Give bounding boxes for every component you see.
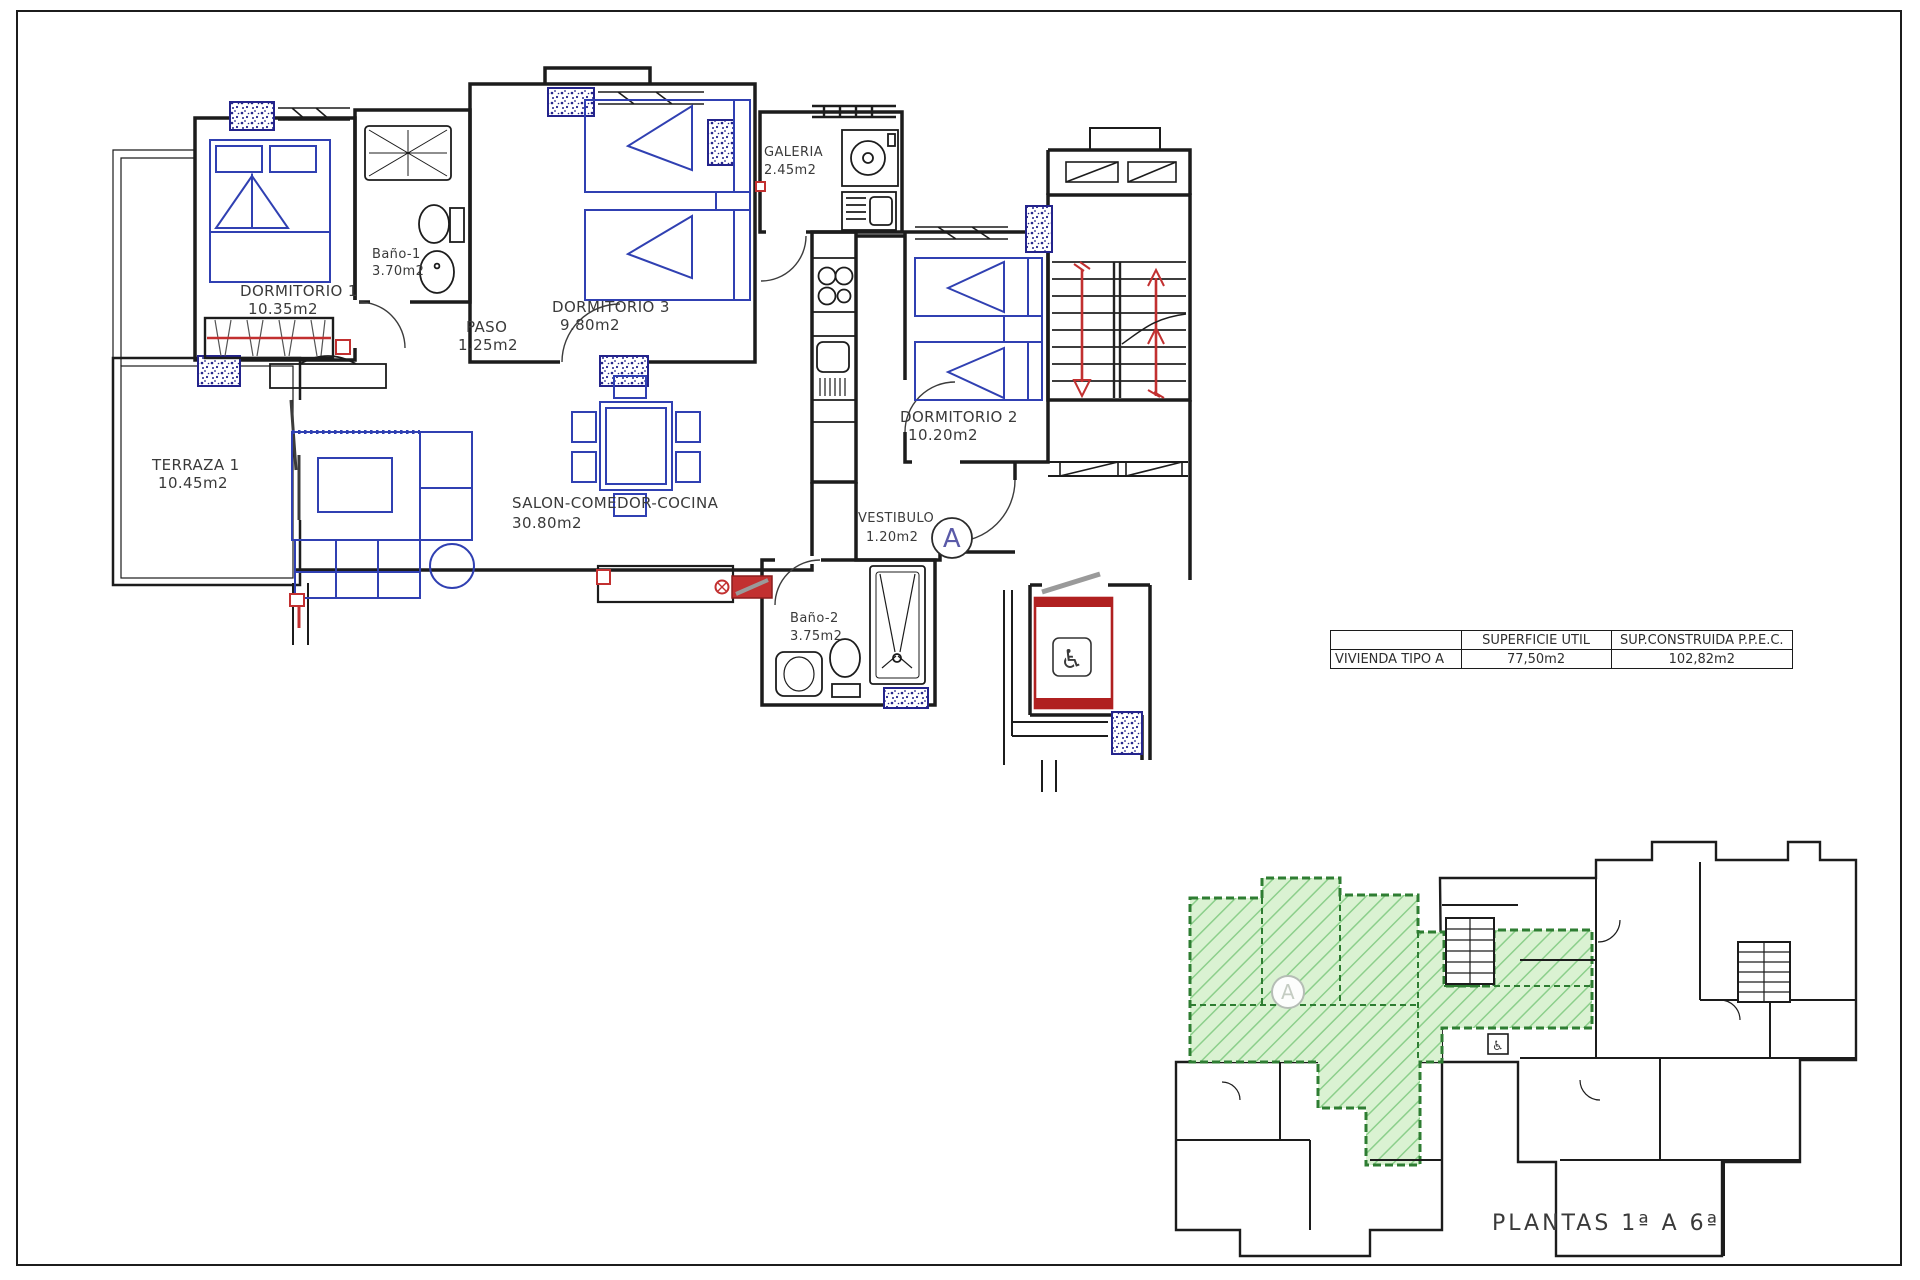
label-bano1-area: 3.70m2 — [372, 264, 424, 279]
label-salon-area: 30.80m2 — [512, 514, 582, 532]
label-dormitorio1-area: 10.35m2 — [248, 300, 318, 318]
label-paso-name: PASO — [466, 318, 507, 336]
key-plan-elevators: ♿ — [1488, 1034, 1508, 1054]
galeria-fixtures — [842, 130, 898, 230]
unit-letter-main: A — [943, 524, 961, 554]
wheelchair-icon: ♿ — [1060, 645, 1084, 675]
label-dormitorio3-name: DORMITORIO 3 — [552, 298, 670, 316]
table-sup-construida: 102,82m2 — [1611, 650, 1792, 669]
label-salon-name: SALON-COMEDOR-COCINA — [512, 494, 719, 512]
key-plan-title: PLANTAS 1ª A 6ª — [1492, 1211, 1720, 1236]
label-dormitorio2-area: 10.20m2 — [908, 426, 978, 444]
key-plan: A ♿ PLANTAS 1ª A 6ª — [1176, 842, 1856, 1256]
table-data-row: VIVIENDA TIPO A 77,50m2 102,82m2 — [1331, 650, 1793, 669]
label-terraza-name: TERRAZA 1 — [151, 456, 240, 474]
surface-summary-table: SUPERFICIE UTIL SUP.CONSTRUIDA P.P.E.C. … — [1330, 630, 1793, 669]
label-dormitorio3-area: 9.80m2 — [560, 316, 620, 334]
table-header-construida: SUP.CONSTRUIDA P.P.E.C. — [1611, 631, 1792, 650]
label-terraza-area: 10.45m2 — [158, 474, 228, 492]
red-accents — [290, 182, 772, 628]
label-galeria-name: GALERIA — [764, 145, 823, 160]
walls — [195, 68, 1190, 792]
main-floorplan: ♿ A DORMITORIO 1 10.35m2 Baño-1 3.70m2 D… — [113, 68, 1190, 792]
label-paso-area: 1.25m2 — [458, 336, 518, 354]
table-row-label: VIVIENDA TIPO A — [1331, 650, 1462, 669]
sofa — [292, 432, 474, 598]
kitchen-fixtures — [812, 258, 856, 422]
label-bano1-name: Baño-1 — [372, 247, 421, 262]
elevator: ♿ — [1035, 574, 1112, 708]
label-bano2-area: 3.75m2 — [790, 629, 842, 644]
label-bano2-name: Baño-2 — [790, 611, 839, 626]
label-vestibulo-area: 1.20m2 — [866, 530, 918, 545]
wheelchair-icon-small: ♿ — [1492, 1039, 1504, 1054]
bed-double — [210, 140, 330, 282]
beds-dorm2 — [915, 258, 1042, 400]
drawing-sheet: ♿ A DORMITORIO 1 10.35m2 Baño-1 3.70m2 D… — [0, 0, 1920, 1280]
unit-badge: A — [932, 518, 972, 558]
label-dormitorio1-name: DORMITORIO 1 — [240, 282, 358, 300]
table-superficie-util: 77,50m2 — [1461, 650, 1611, 669]
staircase — [1052, 262, 1186, 398]
label-vestibulo-name: VESTIBULO — [858, 511, 934, 526]
table-header-empty — [1331, 631, 1462, 650]
label-galeria-area: 2.45m2 — [764, 163, 816, 178]
label-dormitorio2-name: DORMITORIO 2 — [900, 408, 1018, 426]
table-header-row: SUPERFICIE UTIL SUP.CONSTRUIDA P.P.E.C. — [1331, 631, 1793, 650]
wardrobe — [205, 318, 350, 358]
table-header-superficie: SUPERFICIE UTIL — [1461, 631, 1611, 650]
unit-letter-keyplan: A — [1281, 980, 1295, 1004]
